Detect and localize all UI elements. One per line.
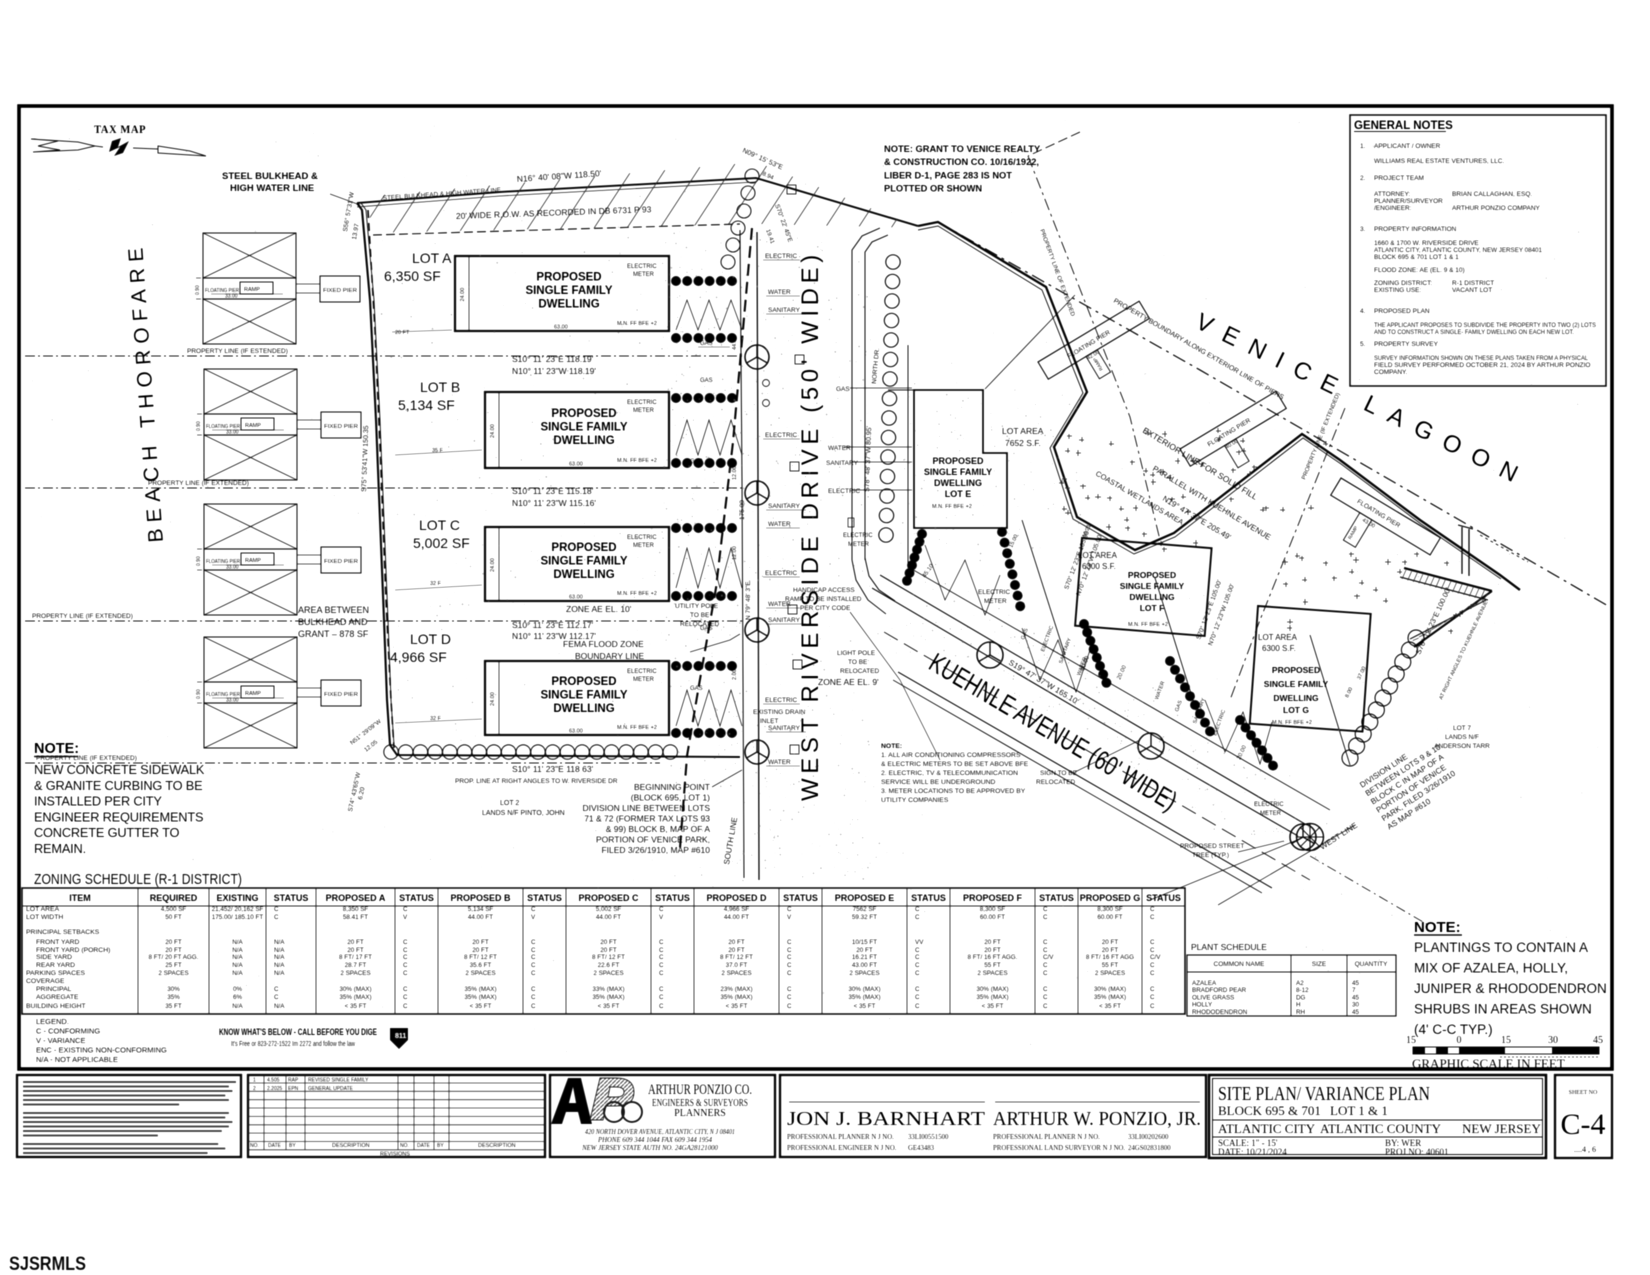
- svg-text:35%: 35%: [167, 994, 180, 1001]
- svg-text:& CONSTRUCTION CO. 10/16/1922,: & CONSTRUCTION CO. 10/16/1922,: [884, 157, 1039, 167]
- svg-text:35.6 FT: 35.6 FT: [470, 962, 492, 969]
- svg-text:< 35 FT: < 35 FT: [982, 1003, 1004, 1010]
- svg-text:PROJ.NO: 40601: PROJ.NO: 40601: [1385, 1147, 1449, 1157]
- svg-text:C: C: [274, 986, 279, 993]
- svg-text:LIBER D-1, PAGE 283 IS NOT: LIBER D-1, PAGE 283 IS NOT: [884, 170, 1012, 180]
- svg-text:1: 1: [253, 1078, 256, 1084]
- svg-text:BUILDING HEIGHT: BUILDING HEIGHT: [26, 1003, 86, 1010]
- svg-text:3.: 3.: [1360, 226, 1366, 233]
- svg-text:SANITARY: SANITARY: [768, 503, 801, 510]
- svg-text:C-4: C-4: [1561, 1108, 1606, 1141]
- svg-text:175.00: 175.00: [739, 500, 746, 520]
- svg-text:PORTION OF VENICE PARK,: PORTION OF VENICE PARK,: [596, 835, 710, 845]
- svg-text:AND TO CONSTRUCT A SINGLE- FAM: AND TO CONSTRUCT A SINGLE- FAMILY DWELLI…: [1374, 329, 1574, 336]
- svg-text:PROPERTY LINE (IF ESTENDED): PROPERTY LINE (IF ESTENDED): [187, 348, 288, 355]
- svg-text:SINGLE FAMILY: SINGLE FAMILY: [1120, 581, 1185, 591]
- svg-text:PLANT SCHEDULE: PLANT SCHEDULE: [1191, 942, 1267, 952]
- svg-text:DATE: 10/21/2024: DATE: 10/21/2024: [1218, 1147, 1287, 1157]
- svg-text:STATUS: STATUS: [911, 893, 946, 903]
- svg-text:NO.: NO.: [250, 1143, 259, 1149]
- svg-text:SURVEY INFORMATION SHOWN ON TH: SURVEY INFORMATION SHOWN ON THESE PLANS …: [1374, 355, 1588, 362]
- svg-text:LOT A: LOT A: [412, 250, 452, 266]
- svg-text:C: C: [1043, 994, 1048, 1001]
- svg-text:PROPOSED: PROPOSED: [1128, 570, 1176, 580]
- svg-text:2 SPACES: 2 SPACES: [158, 970, 188, 977]
- svg-text:PROPOSED E: PROPOSED E: [835, 893, 895, 903]
- svg-text:2.2025: 2.2025: [267, 1086, 283, 1092]
- svg-text:ATLANTIC CITY, ATLANTIC COUNTY: ATLANTIC CITY, ATLANTIC COUNTY, NEW JERS…: [1374, 247, 1542, 254]
- svg-text:4,500 SF: 4,500 SF: [161, 906, 187, 913]
- svg-text:TAX MAP: TAX MAP: [94, 122, 146, 136]
- svg-text:2 SPACES: 2 SPACES: [340, 970, 370, 977]
- svg-text:V - VARIANCE: V - VARIANCE: [36, 1036, 85, 1045]
- svg-text:33.00: 33.00: [225, 294, 238, 300]
- svg-text:NEW JERSEY: NEW JERSEY: [1462, 1121, 1541, 1136]
- svg-text:PROPOSED: PROPOSED: [551, 542, 616, 554]
- svg-text:N/A: N/A: [232, 954, 243, 961]
- svg-text:8,300 SF: 8,300 SF: [980, 906, 1006, 913]
- svg-text:RH: RH: [1296, 1009, 1306, 1016]
- svg-text:20 FT: 20 FT: [1102, 939, 1119, 946]
- svg-text:C: C: [1043, 970, 1048, 977]
- svg-text:C: C: [531, 1003, 536, 1010]
- svg-text:DWELLING: DWELLING: [553, 703, 614, 715]
- svg-text:M.N. FF BFE +2: M.N. FF BFE +2: [932, 504, 972, 510]
- svg-text:30% (MAX): 30% (MAX): [848, 986, 880, 993]
- svg-text:LOT AREA: LOT AREA: [26, 906, 60, 913]
- svg-text:4.: 4.: [1360, 308, 1366, 315]
- svg-text:24.00: 24.00: [460, 288, 466, 302]
- svg-text:HANDICAP ACCESS: HANDICAP ACCESS: [793, 587, 855, 594]
- svg-text:ELECTRIC: ELECTRIC: [828, 488, 860, 495]
- svg-text:SANITARY: SANITARY: [768, 725, 801, 732]
- svg-text:REQUIRED: REQUIRED: [150, 893, 198, 903]
- svg-text:SIDE YARD: SIDE YARD: [36, 954, 72, 961]
- svg-text:DWELLING: DWELLING: [1273, 693, 1319, 703]
- svg-text:STATUS: STATUS: [1039, 893, 1074, 903]
- svg-text:REMAIN.: REMAIN.: [34, 841, 86, 856]
- svg-text:20 FT: 20 FT: [347, 947, 364, 954]
- svg-text:20 FT: 20 FT: [600, 947, 617, 954]
- svg-text:0.90: 0.90: [195, 285, 201, 295]
- svg-text:C: C: [1150, 986, 1155, 993]
- svg-text:0.90: 0.90: [196, 689, 202, 699]
- svg-text:ELECTRIC: ELECTRIC: [627, 264, 657, 270]
- svg-text:C: C: [659, 939, 664, 946]
- svg-text:C: C: [787, 986, 792, 993]
- svg-text:M.N. FF BFE +2: M.N. FF BFE +2: [617, 321, 657, 327]
- svg-text:C: C: [1150, 906, 1155, 913]
- svg-text:M.N. FF BFE +2: M.N. FF BFE +2: [617, 725, 657, 731]
- svg-text:LOT E: LOT E: [945, 489, 972, 499]
- svg-text:NEW JERSEY STATE AUTH NO. 24G: NEW JERSEY STATE AUTH NO. 24GA28121000: [581, 1145, 718, 1152]
- svg-text:PROPOSED C: PROPOSED C: [578, 893, 639, 903]
- svg-text:< 35 FT: < 35 FT: [726, 1003, 748, 1010]
- svg-text:STEEL BULKHEAD &: STEEL BULKHEAD &: [222, 171, 318, 182]
- svg-text:8 FT/ 17 FT: 8 FT/ 17 FT: [339, 954, 372, 961]
- svg-text:6%: 6%: [233, 994, 243, 1001]
- svg-text:0.90: 0.90: [196, 556, 202, 566]
- svg-text:N10° 11' 23"W 118.19': N10° 11' 23"W 118.19': [512, 366, 596, 376]
- svg-text:RAMP: RAMP: [245, 558, 261, 564]
- svg-text:SINGLE FAMILY: SINGLE FAMILY: [540, 690, 627, 702]
- svg-text:S10° 11' 23"E 112.17': S10° 11' 23"E 112.17': [512, 620, 594, 630]
- svg-text:C: C: [1150, 962, 1155, 969]
- svg-text:C: C: [274, 906, 279, 913]
- svg-text:LOT F: LOT F: [1140, 603, 1165, 613]
- svg-text:S10° 11' 23"E 118.19': S10° 11' 23"E 118.19': [512, 354, 594, 364]
- svg-text:< 35 FT: < 35 FT: [345, 1003, 367, 1010]
- svg-text:RAP: RAP: [288, 1078, 299, 1084]
- svg-text:ENC - EXISTING NON-CONFORMING: ENC - EXISTING NON-CONFORMING: [36, 1046, 167, 1055]
- svg-text:C: C: [1043, 906, 1048, 913]
- svg-text:RAMP: RAMP: [245, 423, 261, 429]
- svg-text:37.0 FT: 37.0 FT: [726, 962, 748, 969]
- svg-text:THE APPLICANT PROPOSES TO SUBD: THE APPLICANT PROPOSES TO SUBDIVIDE THE …: [1374, 322, 1597, 329]
- svg-text:WEST RIVERSIDE DRIVE (50' WIDE: WEST RIVERSIDE DRIVE (50' WIDE): [797, 250, 824, 801]
- svg-text:ELECTRIC: ELECTRIC: [978, 589, 1010, 596]
- svg-text:WATER: WATER: [768, 521, 791, 528]
- svg-text:RAMP TO BE INSTALLED: RAMP TO BE INSTALLED: [785, 596, 862, 603]
- svg-text:DWELLING: DWELLING: [1129, 592, 1175, 602]
- svg-text:30: 30: [1352, 1002, 1360, 1009]
- svg-text:DESCRIPTION: DESCRIPTION: [332, 1143, 370, 1149]
- svg-text:GENERAL NOTES: GENERAL NOTES: [1354, 120, 1453, 132]
- svg-text:811: 811: [395, 1033, 406, 1040]
- svg-text:C: C: [1150, 914, 1155, 921]
- svg-text:C: C: [403, 947, 408, 954]
- svg-text:1.: 1.: [1360, 143, 1366, 150]
- svg-text:N/A: N/A: [274, 970, 285, 977]
- svg-text:BY: BY: [289, 1143, 296, 1149]
- svg-text:FIXED PIER: FIXED PIER: [323, 288, 357, 294]
- svg-text:ELECTRIC: ELECTRIC: [627, 535, 657, 541]
- svg-text:PARKING SPACES: PARKING SPACES: [26, 970, 86, 977]
- svg-text:RAMP: RAMP: [245, 691, 261, 697]
- svg-text:ELECTRIC: ELECTRIC: [627, 669, 657, 675]
- svg-text:< 35 FT: < 35 FT: [470, 1003, 492, 1010]
- svg-text:8,350 SF: 8,350 SF: [343, 906, 369, 913]
- svg-text:0: 0: [1457, 1035, 1462, 1046]
- svg-text:DWELLING: DWELLING: [553, 569, 614, 581]
- svg-text:N/A: N/A: [232, 947, 243, 954]
- svg-text:35% (MAX): 35% (MAX): [339, 994, 371, 1001]
- svg-text:....4 , 6: ....4 , 6: [1574, 1145, 1596, 1154]
- svg-text:20 FT: 20 FT: [472, 947, 489, 954]
- svg-text:PROPOSED D: PROPOSED D: [706, 893, 767, 903]
- svg-text:22.6 FT: 22.6 FT: [598, 962, 620, 969]
- svg-text:& 99) BLOCK B, MAP OF A: & 99) BLOCK B, MAP OF A: [606, 824, 711, 834]
- svg-text:1660 & 1700 W. RIVERSIDE DRIVE: 1660 & 1700 W. RIVERSIDE DRIVE: [1374, 240, 1479, 247]
- svg-text:C: C: [274, 994, 279, 1001]
- svg-text:R-1 DISTRICT: R-1 DISTRICT: [1452, 280, 1494, 287]
- svg-text:PROP. LINE AT RIGHT ANGLES TO: PROP. LINE AT RIGHT ANGLES TO W. RIVERSI…: [455, 778, 618, 785]
- svg-text:35% (MAX): 35% (MAX): [592, 994, 624, 1001]
- svg-text:15: 15: [1501, 1035, 1511, 1046]
- svg-text:SERVICE WILL BE UNDERGROUND: SERVICE WILL BE UNDERGROUND: [881, 779, 996, 786]
- svg-text:N/A: N/A: [232, 1003, 243, 1010]
- svg-text:8 FT/ 12 FT: 8 FT/ 12 FT: [464, 954, 497, 961]
- svg-text:C: C: [531, 986, 536, 993]
- svg-text:C: C: [531, 947, 536, 954]
- svg-text:175.00/ 185.10 FT: 175.00/ 185.10 FT: [212, 914, 264, 921]
- svg-text:DWELLING: DWELLING: [538, 299, 599, 311]
- svg-text:DATE: DATE: [417, 1143, 431, 1149]
- svg-text:59.32 FT: 59.32 FT: [852, 914, 877, 921]
- svg-text:(BLOCK 695, LOT 1): (BLOCK 695, LOT 1): [631, 793, 710, 803]
- svg-text:50 FT: 50 FT: [165, 914, 182, 921]
- svg-text:METER: METER: [633, 272, 655, 278]
- svg-text:8 FT/ 20 FT AGG.: 8 FT/ 20 FT AGG.: [149, 954, 199, 961]
- svg-text:LOT C: LOT C: [419, 517, 460, 533]
- svg-text:COMPANY.: COMPANY.: [1374, 369, 1408, 376]
- svg-text:PROPERTY LINE (IF EXTENDED): PROPERTY LINE (IF EXTENDED): [148, 480, 249, 487]
- svg-text:M.N. FF BFE +2: M.N. FF BFE +2: [1272, 720, 1312, 726]
- svg-text:LOT AREA: LOT AREA: [1002, 426, 1044, 436]
- svg-text:21,452/ 20,162 SF: 21,452/ 20,162 SF: [212, 906, 264, 913]
- svg-text:AGGREGATE: AGGREGATE: [36, 994, 79, 1001]
- svg-text:ARTHUR PONZIO COMPANY: ARTHUR PONZIO COMPANY: [1452, 205, 1541, 212]
- svg-text:C: C: [915, 994, 920, 1001]
- svg-text:C: C: [787, 970, 792, 977]
- svg-text:C: C: [1150, 939, 1155, 946]
- svg-text:C: C: [787, 947, 792, 954]
- svg-text:30%: 30%: [167, 986, 180, 993]
- svg-text:VACANT LOT: VACANT LOT: [1452, 287, 1492, 294]
- svg-text:63.00: 63.00: [569, 595, 583, 601]
- svg-text:GAS: GAS: [700, 378, 713, 384]
- svg-text:TO BE: TO BE: [848, 659, 868, 666]
- svg-text:NEW CONCRETE SIDEWALK: NEW CONCRETE SIDEWALK: [34, 762, 205, 777]
- svg-text:5,002 SF: 5,002 SF: [596, 906, 622, 913]
- svg-text:(4' C-C TYP.): (4' C-C TYP.): [1414, 1022, 1493, 1037]
- svg-text:2. ELECTRIC, TV & TELECOMMUNIC: 2. ELECTRIC, TV & TELECOMMUNICATION: [881, 770, 1018, 777]
- svg-text:PROPOSED: PROPOSED: [1272, 665, 1320, 675]
- svg-text:55 FT: 55 FT: [1102, 962, 1119, 969]
- svg-text:C: C: [659, 986, 664, 993]
- svg-text:FEMA FLOOD ZONE: FEMA FLOOD ZONE: [563, 639, 644, 649]
- svg-text:S10° 11' 23"E 118 63': S10° 11' 23"E 118 63': [512, 764, 594, 774]
- svg-text:C: C: [531, 994, 536, 1001]
- svg-text:55 FT: 55 FT: [984, 962, 1001, 969]
- svg-text:C: C: [659, 962, 664, 969]
- svg-text:NOTE:: NOTE:: [34, 741, 79, 757]
- svg-text:C: C: [787, 954, 792, 961]
- svg-text:PROPOSED STREET: PROPOSED STREET: [1180, 843, 1244, 850]
- svg-text:SINGLE FAMILY: SINGLE FAMILY: [924, 467, 992, 477]
- svg-text:LEGEND.: LEGEND.: [36, 1017, 69, 1026]
- svg-text:C: C: [915, 954, 920, 961]
- svg-text:SIGN TO BE: SIGN TO BE: [1040, 770, 1078, 777]
- svg-text:C: C: [531, 939, 536, 946]
- svg-text:FRONT YARD: FRONT YARD: [36, 939, 80, 946]
- svg-text:BOUNDARY LINE: BOUNDARY LINE: [575, 651, 644, 661]
- svg-text:NOTE:: NOTE:: [881, 743, 902, 750]
- svg-text:BULKHEAD AND: BULKHEAD AND: [298, 617, 368, 627]
- svg-text:WILLIAMS REAL ESTATE VENTURES,: WILLIAMS REAL ESTATE VENTURES, LLC.: [1374, 158, 1504, 165]
- svg-text:33.00: 33.00: [226, 698, 239, 704]
- svg-text:420 NORTH DOVER AVENUE, ATLANT: 420 NORTH DOVER AVENUE, ATLANTIC CITY, N…: [585, 1129, 735, 1136]
- svg-text:ATTORNEY:: ATTORNEY:: [1374, 191, 1410, 198]
- svg-text:8,300 SF: 8,300 SF: [1097, 906, 1123, 913]
- svg-text:RELOCATED: RELOCATED: [840, 668, 880, 675]
- svg-text:INLET: INLET: [760, 718, 778, 725]
- svg-text:33LI00202600: 33LI00202600: [1128, 1134, 1169, 1141]
- svg-text:BRADFORD PEAR: BRADFORD PEAR: [1192, 987, 1247, 994]
- svg-text:APPLICANT / OWNER: APPLICANT / OWNER: [1374, 143, 1441, 150]
- svg-text:N 79° 48' 3"E: N 79° 48' 3"E: [744, 581, 752, 620]
- svg-text:< 35 FT: < 35 FT: [598, 1003, 620, 1010]
- svg-text:NOTE:: NOTE:: [1414, 919, 1461, 936]
- svg-text:C: C: [915, 947, 920, 954]
- svg-text:12.00: 12.00: [732, 546, 738, 560]
- svg-text:60.00 FT: 60.00 FT: [980, 914, 1005, 921]
- svg-text:8-12: 8-12: [1296, 987, 1309, 994]
- svg-text:44.00 FT: 44.00 FT: [724, 914, 749, 921]
- svg-text:24.00: 24.00: [490, 424, 496, 438]
- svg-text:30% (MAX): 30% (MAX): [1094, 986, 1126, 993]
- svg-text:UTILITY POLE: UTILITY POLE: [675, 603, 719, 610]
- svg-text:ELECTRIC: ELECTRIC: [843, 533, 873, 539]
- svg-text:PHONE 609 344 1044 FAX: PHONE 609 344 1044 FAX 609 344 1954: [597, 1137, 713, 1144]
- svg-text:EPN: EPN: [288, 1086, 299, 1092]
- svg-text:JUNIPER & RHODODENDRON: JUNIPER & RHODODENDRON: [1414, 981, 1607, 996]
- svg-text:PROFESSIONAL PLANNER N J NO.: PROFESSIONAL PLANNER N J NO.: [787, 1134, 894, 1141]
- svg-text:6,350 SF: 6,350 SF: [384, 268, 441, 284]
- svg-text:PROPOSED PLAN: PROPOSED PLAN: [1374, 308, 1430, 315]
- svg-text:LOT 1 & 1: LOT 1 & 1: [1330, 1103, 1388, 1118]
- svg-text:8 FT/ 12 FT: 8 FT/ 12 FT: [592, 954, 625, 961]
- svg-text:REVISIONS: REVISIONS: [380, 1152, 410, 1158]
- svg-text:ENGINEER REQUIREMENTS: ENGINEER REQUIREMENTS: [34, 809, 203, 824]
- svg-text:C/V: C/V: [1043, 954, 1054, 961]
- svg-text:C: C: [915, 986, 920, 993]
- svg-text:35 FT: 35 FT: [165, 1003, 182, 1010]
- svg-text:C/V: C/V: [1150, 954, 1161, 961]
- svg-text:PLANTINGS TO CONTAIN A: PLANTINGS TO CONTAIN A: [1414, 940, 1588, 955]
- svg-text:7652 S.F.: 7652 S.F.: [1005, 438, 1041, 448]
- svg-text:C: C: [915, 906, 920, 913]
- svg-text:AREA BETWEEN: AREA BETWEEN: [298, 605, 369, 615]
- svg-text:ELECTRIC: ELECTRIC: [1254, 802, 1284, 808]
- svg-text:20 FT: 20 FT: [728, 947, 745, 954]
- svg-text:C: C: [659, 994, 664, 1001]
- svg-text:STATUS: STATUS: [1146, 893, 1181, 903]
- svg-text:30: 30: [1548, 1035, 1558, 1046]
- svg-text:FLOOD ZONE: AE (EL. 9 & 10): FLOOD ZONE: AE (EL. 9 & 10): [1374, 267, 1465, 274]
- svg-text:FIXED PIER: FIXED PIER: [324, 692, 358, 698]
- svg-text:5.: 5.: [1360, 341, 1366, 348]
- svg-text:C: C: [659, 954, 664, 961]
- svg-text:CONCRETE GUTTER TO: CONCRETE GUTTER TO: [34, 825, 179, 840]
- svg-text:DWELLING: DWELLING: [553, 435, 614, 447]
- svg-text:33.00: 33.00: [226, 565, 239, 571]
- svg-text:N/A: N/A: [274, 947, 285, 954]
- svg-text:20 FT: 20 FT: [600, 939, 617, 946]
- svg-text:C: C: [403, 986, 408, 993]
- svg-text:33LI00551500: 33LI00551500: [908, 1134, 949, 1141]
- svg-text:LOT AREA: LOT AREA: [1258, 633, 1298, 642]
- svg-text:FILED 3/26/1910, MAP #610: FILED 3/26/1910, MAP #610: [601, 845, 710, 855]
- svg-text:/ENGINEER:: /ENGINEER:: [1374, 205, 1412, 212]
- svg-text:SIZE: SIZE: [1312, 961, 1327, 968]
- svg-text:PRINCIPAL: PRINCIPAL: [36, 986, 72, 993]
- svg-text:N/A: N/A: [274, 939, 285, 946]
- svg-text:3. METER LOCATIONS TO BE APPRO: 3. METER LOCATIONS TO BE APPROVED BY: [881, 788, 1026, 795]
- svg-text:C: C: [403, 1003, 408, 1010]
- svg-text:20 FT: 20 FT: [165, 939, 182, 946]
- svg-text:A2: A2: [1296, 980, 1304, 987]
- svg-text:METER: METER: [633, 677, 655, 683]
- svg-text:PROPOSED F: PROPOSED F: [963, 893, 1023, 903]
- svg-text:30% (MAX): 30% (MAX): [339, 986, 371, 993]
- svg-text:HOLLY: HOLLY: [1192, 1002, 1213, 1009]
- svg-text:& GRANITE CURBING TO BE: & GRANITE CURBING TO BE: [34, 778, 202, 793]
- svg-text:SINGLE FAMILY: SINGLE FAMILY: [1264, 679, 1329, 689]
- svg-text:C: C: [1043, 962, 1048, 969]
- svg-text:4,966 SF: 4,966 SF: [390, 649, 447, 665]
- svg-text:M.N. FF BFE +2: M.N. FF BFE +2: [1128, 622, 1168, 628]
- svg-text:LOT WIDTH: LOT WIDTH: [26, 914, 63, 921]
- svg-text:PROFESSIONAL LAND SURVEYOR N J: PROFESSIONAL LAND SURVEYOR N J NO.: [993, 1145, 1125, 1152]
- svg-text:& ELECTRIC METERS TO BE SET AB: & ELECTRIC METERS TO BE SET ABOVE BFE: [881, 761, 1029, 768]
- svg-text:PROPOSED B: PROPOSED B: [450, 893, 511, 903]
- svg-text:35% (MAX): 35% (MAX): [720, 994, 752, 1001]
- svg-text:SITE PLAN/ VARIANCE PLAN: SITE PLAN/ VARIANCE PLAN: [1218, 1083, 1430, 1105]
- svg-text:METER: METER: [633, 543, 655, 549]
- svg-text:WATER: WATER: [828, 445, 851, 452]
- svg-text:63.00: 63.00: [569, 729, 583, 735]
- svg-text:SANITARY: SANITARY: [826, 460, 859, 467]
- svg-text:C: C: [403, 994, 408, 1001]
- svg-text:60.00 FT: 60.00 FT: [1097, 914, 1122, 921]
- svg-text:35% (MAX): 35% (MAX): [464, 986, 496, 993]
- svg-text:C: C: [531, 906, 536, 913]
- svg-text:LOT G: LOT G: [1283, 705, 1309, 715]
- svg-text:DESCRIPTION: DESCRIPTION: [478, 1143, 516, 1149]
- svg-text:7562 SF: 7562 SF: [853, 906, 877, 913]
- svg-text:35% (MAX): 35% (MAX): [1094, 994, 1126, 1001]
- svg-text:C: C: [1150, 947, 1155, 954]
- svg-text:N/A: N/A: [232, 970, 243, 977]
- svg-text:TREE (TYP.): TREE (TYP.): [1192, 852, 1229, 859]
- svg-text:C: C: [1043, 1003, 1048, 1010]
- svg-text:DATE: DATE: [268, 1143, 282, 1149]
- svg-text:10/15 FT: 10/15 FT: [852, 939, 877, 946]
- svg-text:20 FT: 20 FT: [728, 939, 745, 946]
- svg-text:LIGHT POLE: LIGHT POLE: [837, 650, 876, 657]
- svg-text:12.00: 12.00: [732, 466, 738, 480]
- svg-text:SHEET NO: SHEET NO: [1569, 1090, 1598, 1096]
- svg-text:FRONT YARD (PORCH): FRONT YARD (PORCH): [36, 947, 110, 954]
- svg-text:BLOCK 695 & 701 LOT 1 & 1: BLOCK 695 & 701 LOT 1 & 1: [1374, 254, 1459, 261]
- svg-text:FIXED PIER: FIXED PIER: [324, 424, 358, 430]
- svg-text:25 FT: 25 FT: [165, 962, 182, 969]
- svg-text:20 FT: 20 FT: [984, 939, 1001, 946]
- svg-text:C: C: [1043, 947, 1048, 954]
- svg-text:REVISED SINGLE FAMILY: REVISED SINGLE FAMILY: [308, 1078, 369, 1084]
- svg-text:5,002 SF: 5,002 SF: [413, 535, 470, 551]
- svg-text:DG: DG: [1296, 994, 1306, 1001]
- svg-text:KNOW WHAT'S BELOW - CALL BEF: KNOW WHAT'S BELOW - CALL BEFORE YOU DIGE: [219, 1027, 377, 1038]
- svg-text:2 SPACES: 2 SPACES: [593, 970, 623, 977]
- svg-text:ATLANTIC COUNTY: ATLANTIC COUNTY: [1320, 1121, 1442, 1136]
- svg-text:ATLANTIC CITY: ATLANTIC CITY: [1218, 1121, 1316, 1136]
- svg-text:7: 7: [1352, 987, 1356, 994]
- svg-text:32 F: 32 F: [430, 581, 442, 587]
- svg-text:NO.: NO.: [400, 1143, 409, 1149]
- svg-text:C: C: [274, 914, 279, 921]
